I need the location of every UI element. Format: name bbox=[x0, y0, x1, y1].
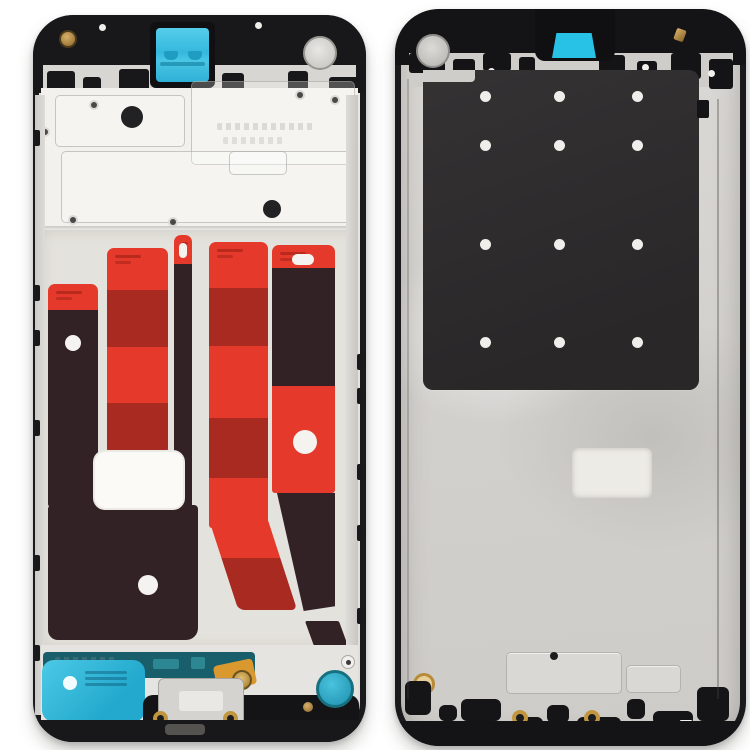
loudspeaker-grille bbox=[85, 671, 127, 674]
screw-hole bbox=[341, 655, 355, 669]
usb-bracket-slot bbox=[179, 691, 223, 711]
right-bottom-frame bbox=[395, 721, 746, 746]
front-housing-rear-view bbox=[395, 9, 746, 746]
product-photo bbox=[0, 0, 750, 750]
front-housing-front-view bbox=[33, 15, 366, 742]
loudspeaker-sticker-hole bbox=[63, 676, 77, 690]
mic-mesh-sticker bbox=[316, 670, 354, 708]
port-contact bbox=[303, 702, 313, 712]
usb-opening bbox=[165, 724, 205, 735]
pcb-pad bbox=[191, 657, 205, 669]
panel-seam bbox=[407, 79, 409, 699]
panel-seam bbox=[717, 99, 719, 699]
loudspeaker-sticker bbox=[42, 660, 145, 722]
pcb-pad bbox=[153, 659, 179, 669]
